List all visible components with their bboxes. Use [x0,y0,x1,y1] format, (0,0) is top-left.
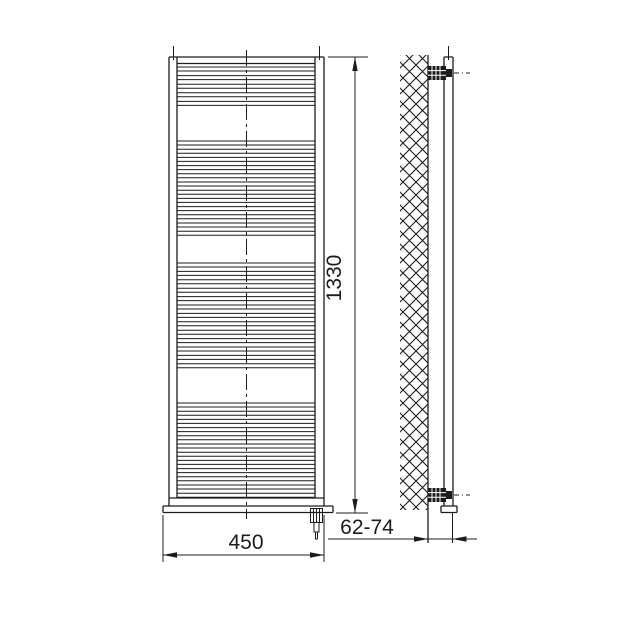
technical-drawing: 1330 450 [0,0,630,630]
left-collector-tube [169,57,177,506]
width-arrow-right [310,552,324,557]
drawing-canvas: 1330 450 [0,0,630,630]
width-dimension-label: 450 [228,531,263,554]
width-dimension: 450 [163,515,324,562]
wall-distance-dimension-label: 62-74 [340,516,394,539]
wall-distance-arrow-left [414,536,428,541]
width-arrow-left [163,552,177,557]
wall-distance-arrow-right [453,536,467,541]
mounting-bracket-top [428,66,470,80]
height-dimension: 1330 [323,57,368,513]
radiator-front-view [163,46,333,539]
radiator-side-view [400,46,470,543]
height-dimension-label: 1330 [323,255,346,302]
side-foot [441,506,457,513]
height-arrow-top [352,57,357,71]
bottom-rail [163,498,333,513]
wall-distance-dimension: 62-74 [328,513,477,543]
wall-hatch [400,55,428,510]
height-arrow-bottom [352,499,357,513]
side-tube [444,57,453,506]
mounting-bracket-bottom [428,488,470,502]
